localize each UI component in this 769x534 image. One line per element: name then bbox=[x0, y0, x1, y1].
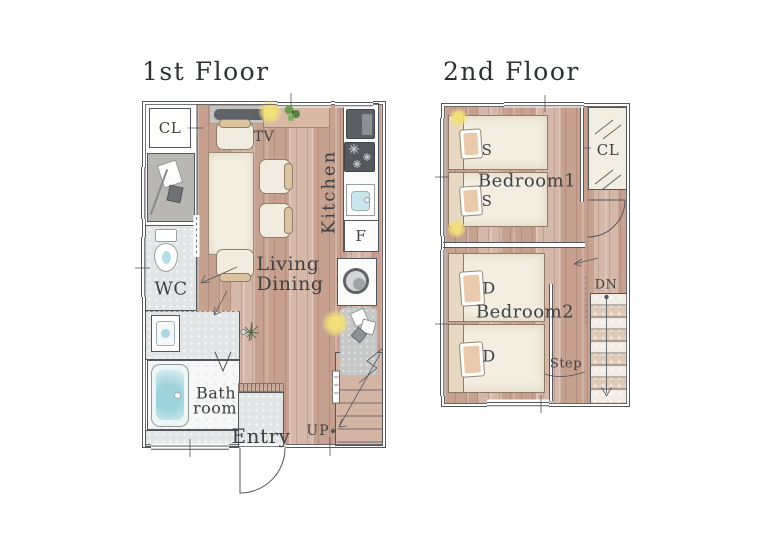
kitchen-sink bbox=[346, 184, 375, 216]
label-kitchen: Kitchen bbox=[319, 150, 340, 234]
microwave-oven bbox=[346, 109, 375, 139]
washing-machine bbox=[337, 258, 377, 306]
dining-chair-right-2 bbox=[259, 203, 291, 238]
label-bed-s1: S bbox=[482, 141, 493, 159]
label-tv: TV bbox=[254, 129, 274, 145]
dining-chair-right-1 bbox=[259, 159, 291, 194]
label-bed-s2: S bbox=[482, 192, 493, 210]
ceiling-light-living bbox=[322, 310, 349, 337]
floor1-washroom-lower-tile bbox=[145, 430, 240, 447]
bathtub bbox=[151, 364, 189, 427]
floor2-staircase bbox=[590, 293, 627, 403]
floor1-storage-room bbox=[147, 153, 195, 222]
washer-drum bbox=[343, 268, 369, 294]
chair-back bbox=[284, 207, 293, 234]
label-bedroom1: Bedroom1 bbox=[478, 171, 576, 192]
label-cl-1f: CL bbox=[159, 119, 181, 137]
sink-faucet bbox=[364, 197, 370, 203]
entry-door-arc bbox=[240, 444, 286, 494]
stove-cooktop bbox=[344, 142, 375, 172]
chair-back bbox=[219, 273, 251, 282]
floor2-bedroom1-right-wall bbox=[580, 105, 584, 202]
label-bed-d2: D bbox=[482, 347, 495, 366]
label-step: Step bbox=[550, 357, 582, 372]
ceiling-light-bedroom1-top bbox=[449, 108, 468, 127]
label-bedroom2: Bedroom2 bbox=[476, 302, 574, 323]
washbasin-drain bbox=[161, 329, 170, 338]
bathtub-drain bbox=[174, 392, 181, 399]
chair-back bbox=[219, 119, 251, 128]
washbasin bbox=[151, 315, 180, 352]
label-up: UP bbox=[306, 423, 329, 439]
label-bath-2: room bbox=[193, 399, 237, 418]
double-bed-2 bbox=[448, 324, 545, 393]
label-dn: DN bbox=[595, 278, 618, 293]
label-wc: WC bbox=[154, 279, 187, 300]
washer-drum-center bbox=[353, 278, 365, 290]
label-dining: Dining bbox=[256, 273, 323, 295]
label-living: Living bbox=[257, 253, 320, 275]
floorplan-canvas: 1st Floor bbox=[0, 0, 769, 534]
toilet-tank bbox=[155, 229, 177, 242]
toilet-water bbox=[162, 251, 171, 264]
label-bed-d1: D bbox=[482, 279, 495, 298]
storage-box-decor bbox=[166, 185, 183, 204]
floor2-title: 2nd Floor bbox=[443, 57, 580, 86]
chair-back bbox=[284, 163, 293, 190]
dining-chair-bottom bbox=[216, 249, 254, 278]
entry-step-edge bbox=[238, 383, 284, 392]
label-cl-2f: CL bbox=[597, 141, 619, 159]
dining-chair-top bbox=[216, 122, 254, 150]
floor2-wall-between-bedrooms bbox=[443, 242, 585, 248]
ceiling-light-bedroom1-bottom bbox=[447, 219, 466, 238]
bed-pillow bbox=[459, 128, 483, 159]
microwave-window bbox=[362, 114, 372, 135]
label-entry: Entry bbox=[232, 424, 291, 448]
label-fridge: F bbox=[356, 227, 367, 245]
dining-table bbox=[208, 152, 254, 255]
floor1-title: 1st Floor bbox=[142, 57, 270, 86]
ceiling-light-shelf bbox=[258, 100, 282, 124]
bed-pillow bbox=[459, 341, 485, 378]
storage-rod-decor bbox=[150, 169, 168, 215]
toilet-bowl bbox=[154, 243, 178, 272]
